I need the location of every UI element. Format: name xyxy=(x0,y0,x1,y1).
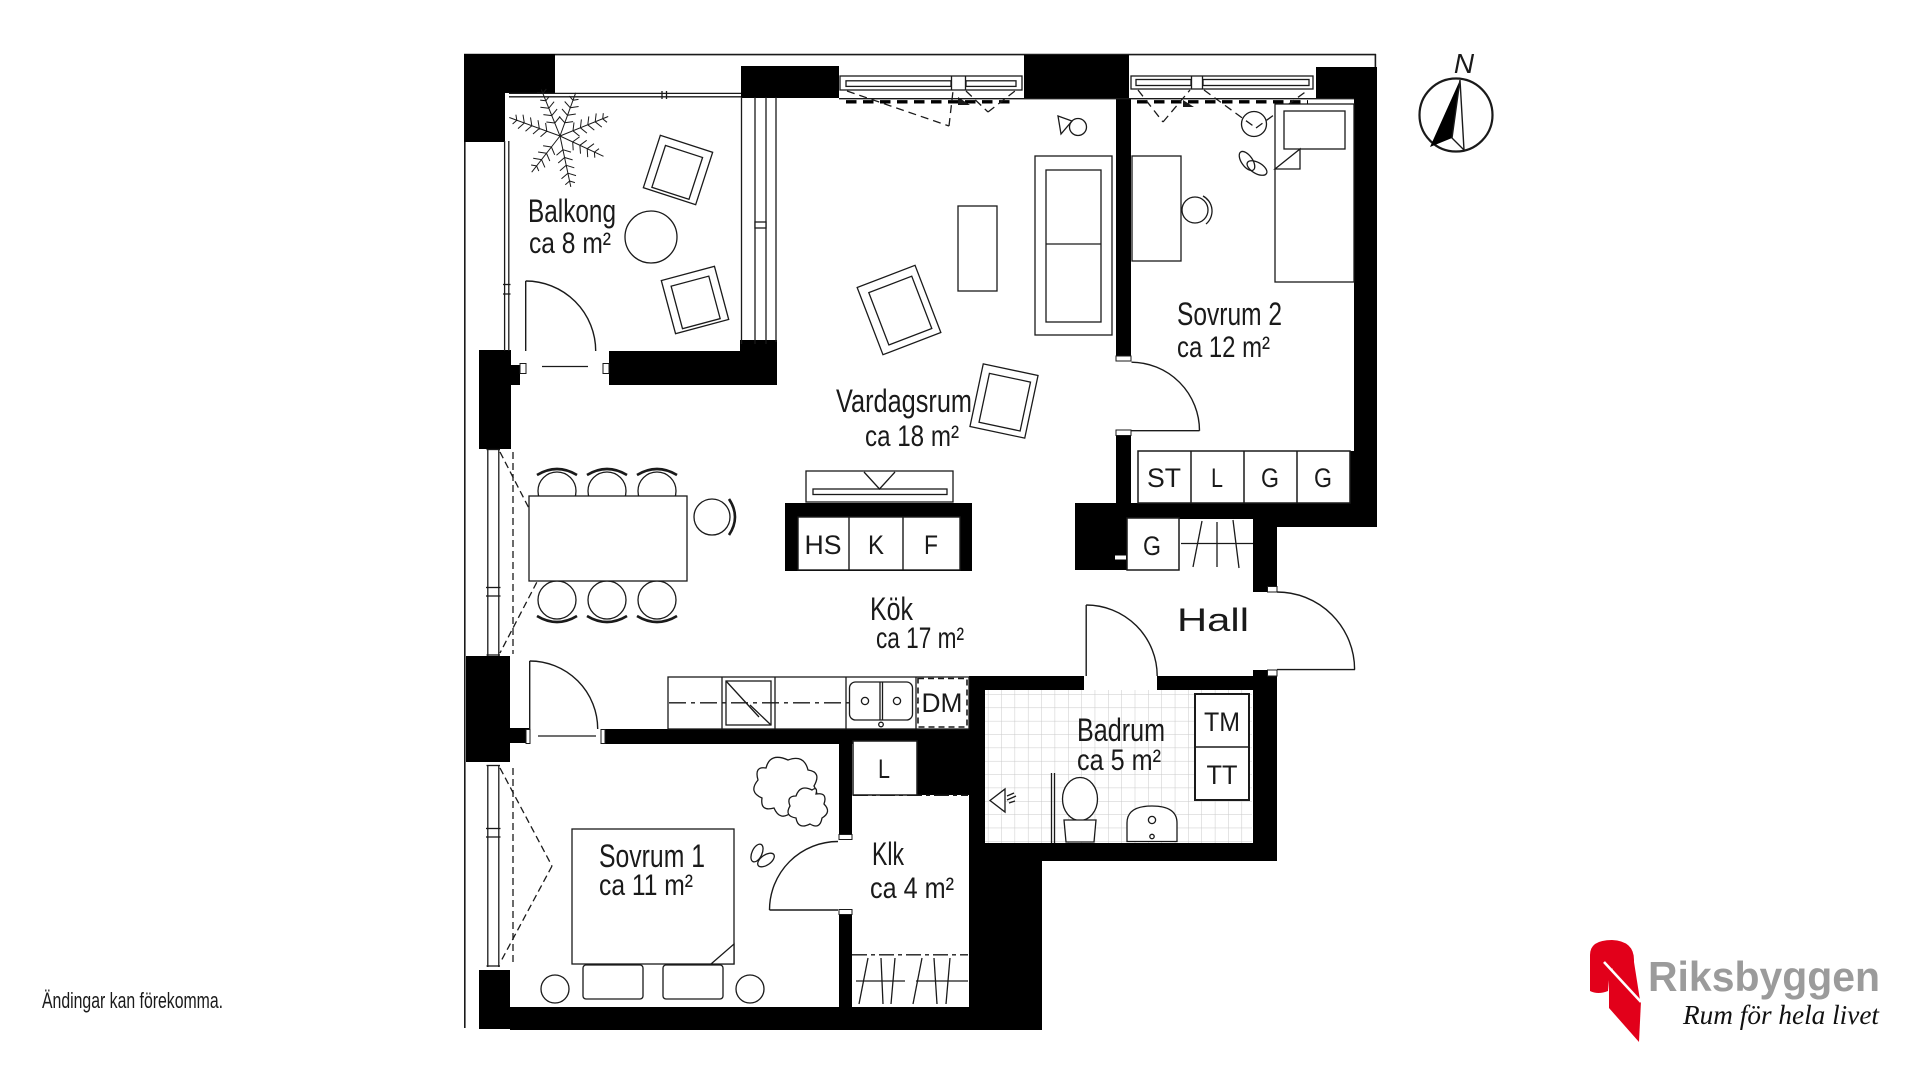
svg-text:Badrum: Badrum xyxy=(1077,712,1165,748)
svg-text:K: K xyxy=(868,530,884,560)
svg-text:G: G xyxy=(1314,463,1332,493)
svg-text:HS: HS xyxy=(805,530,842,560)
svg-text:L: L xyxy=(878,754,890,784)
svg-text:ca 5 m²: ca 5 m² xyxy=(1077,744,1161,777)
svg-text:Sovrum 2: Sovrum 2 xyxy=(1177,296,1282,332)
svg-text:ca 18 m²: ca 18 m² xyxy=(865,420,959,453)
svg-text:L: L xyxy=(1211,463,1223,493)
svg-text:ca 12 m²: ca 12 m² xyxy=(1177,331,1270,364)
svg-text:Vardagsrum: Vardagsrum xyxy=(836,383,972,419)
svg-text:Balkong: Balkong xyxy=(528,193,616,229)
svg-text:Hall: Hall xyxy=(1177,602,1249,638)
svg-text:TM: TM xyxy=(1204,707,1240,737)
svg-text:ca 11 m²: ca 11 m² xyxy=(599,869,693,902)
svg-text:N: N xyxy=(1454,48,1475,79)
svg-text:G: G xyxy=(1143,531,1161,561)
svg-text:DM: DM xyxy=(922,688,963,718)
svg-text:Ändingar kan förekomma.: Ändingar kan förekomma. xyxy=(42,988,223,1013)
svg-text:ca 8 m²: ca 8 m² xyxy=(529,227,611,260)
svg-text:ca 4 m²: ca 4 m² xyxy=(870,872,954,905)
svg-text:Riksbyggen: Riksbyggen xyxy=(1648,953,1880,1000)
svg-text:Rum för hela livet: Rum för hela livet xyxy=(1682,1000,1881,1030)
svg-text:ST: ST xyxy=(1147,463,1181,493)
svg-text:TT: TT xyxy=(1207,760,1238,790)
svg-text:G: G xyxy=(1261,463,1279,493)
svg-text:Klk: Klk xyxy=(872,836,905,872)
svg-text:ca 17 m²: ca 17 m² xyxy=(876,622,964,655)
svg-text:F: F xyxy=(924,530,938,560)
